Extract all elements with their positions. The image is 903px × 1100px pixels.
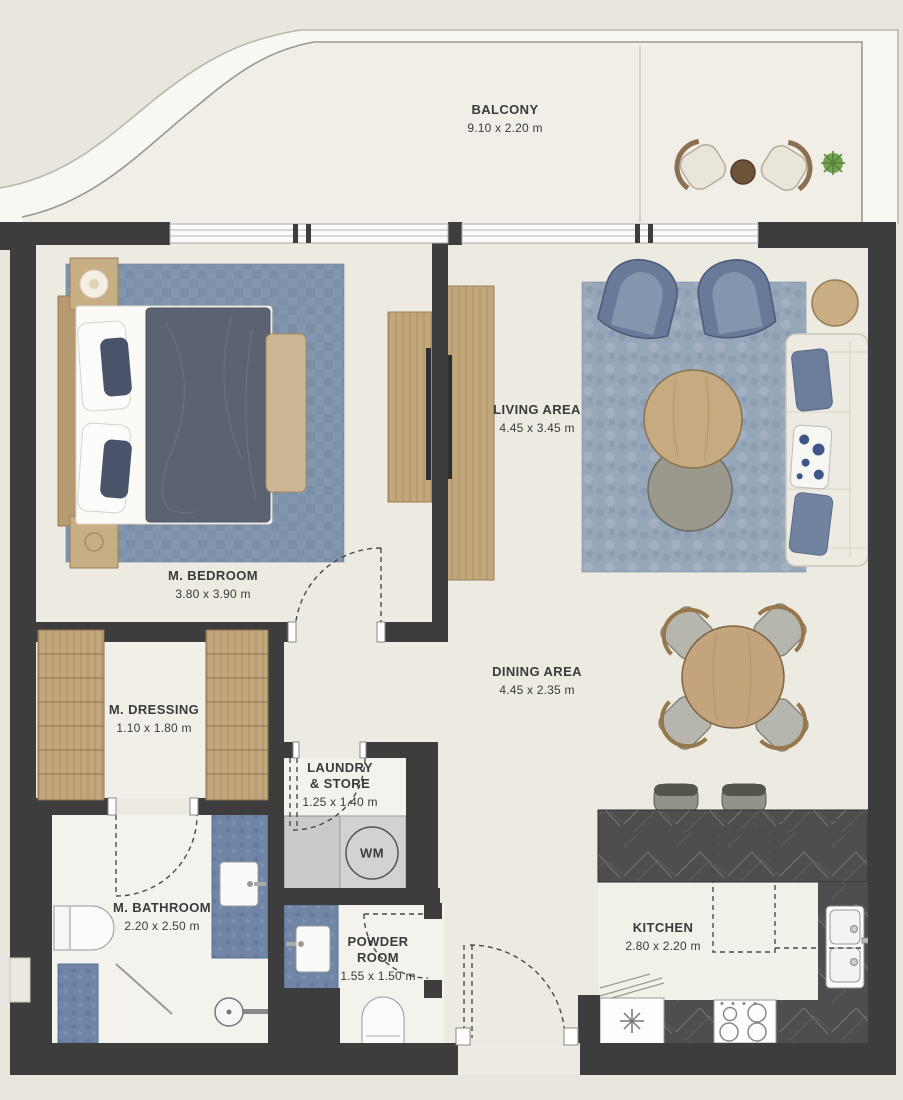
bed-headboard [58, 296, 76, 526]
kitchen-island [598, 810, 868, 882]
living-tv-unit [446, 286, 494, 580]
kitchen-label: KITCHEN 2.80 x 2.20 m [625, 920, 700, 954]
bathroom-faucet [254, 882, 266, 886]
bathroom-label: M. BATHROOM 2.20 x 2.50 m [113, 900, 211, 934]
balcony-label: BALCONY 9.10 x 2.20 m [467, 102, 542, 136]
wall-left [10, 222, 36, 1075]
powder-label: POWDER ROOM 1.55 x 1.50 m [340, 934, 415, 984]
cooktop [714, 1000, 776, 1043]
windows [170, 224, 758, 243]
bathroom-toilet [54, 906, 114, 950]
sofa [786, 334, 868, 566]
wall-top-left [36, 222, 170, 245]
wall-niche [10, 958, 30, 1002]
balcony-area [0, 30, 898, 224]
dressing-label: M. DRESSING 1.10 x 1.80 m [109, 702, 199, 736]
balcony-plant [821, 151, 845, 175]
side-table [812, 280, 858, 326]
entry-threshold [458, 1043, 580, 1075]
sofa-pillow-2 [788, 492, 833, 556]
sofa-pillow-pattern [790, 425, 832, 489]
floorplan-graphics [0, 0, 903, 1100]
living-label: LIVING AREA 4.45 x 3.45 m [493, 402, 581, 436]
balcony-side-table [731, 160, 755, 184]
wall-bedroom-living [432, 242, 448, 642]
bedroom-tv [426, 348, 431, 480]
floor-plan: BALCONY 9.10 x 2.20 m M. BEDROOM 3.80 x … [0, 0, 903, 1100]
bedroom-label: M. BEDROOM 3.80 x 3.90 m [168, 568, 258, 602]
dining-table [682, 626, 784, 728]
window-living [462, 224, 758, 243]
dining-label: DINING AREA 4.45 x 2.35 m [492, 664, 582, 698]
bed-duvet [146, 308, 270, 522]
coffee-table-wood [644, 370, 742, 468]
powder-faucet [286, 942, 296, 946]
shower-tiles [58, 964, 98, 1043]
bedroom-wardrobe-unit [388, 312, 432, 502]
washing-machine-label: WM [360, 846, 384, 861]
wall-bottom-right [580, 1043, 896, 1075]
sofa-pillow-1 [791, 348, 833, 411]
powder-toilet [362, 997, 404, 1044]
wall-bottom-left [10, 1043, 458, 1075]
powder-sink [296, 926, 330, 972]
laundry-label: LAUNDRY & STORE 1.25 x 1.40 m [302, 760, 377, 810]
laundry-area [284, 816, 406, 890]
bed-bench [266, 334, 306, 492]
wall-right [868, 225, 896, 1075]
